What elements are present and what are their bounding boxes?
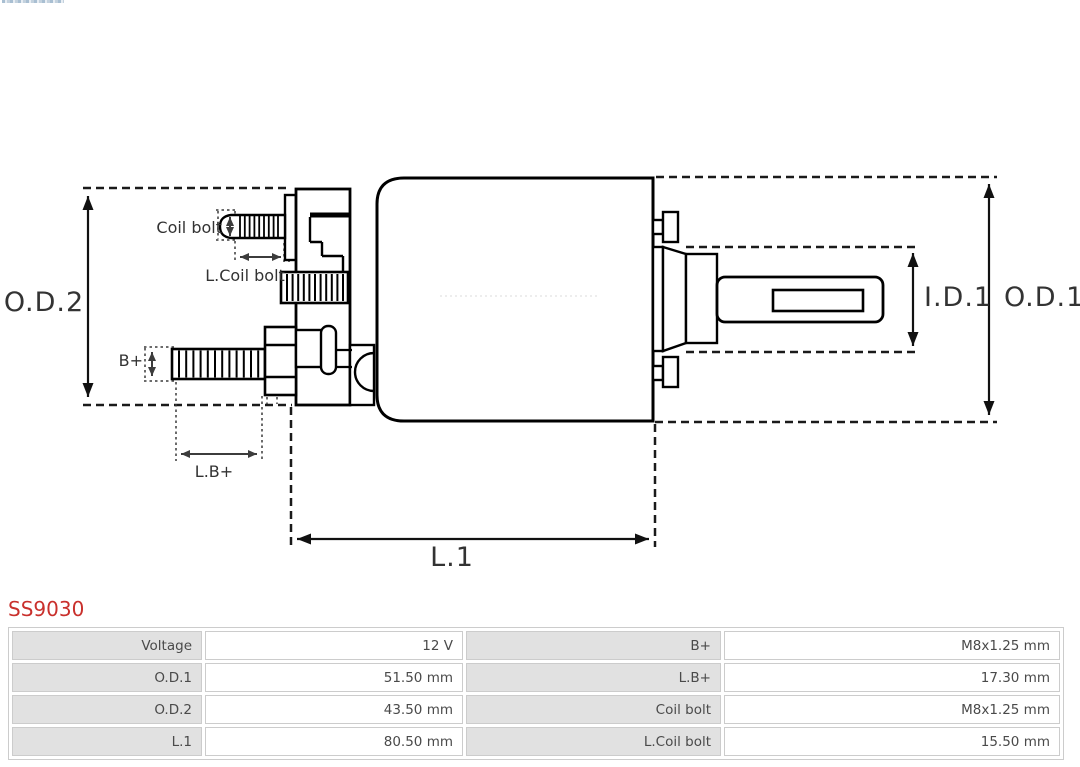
id1-label: I.D.1 [924, 282, 992, 313]
spec-value: 17.30 mm [724, 663, 1060, 692]
spec-label: Coil bolt [466, 695, 721, 724]
rear-end-assembly [653, 212, 883, 387]
coil-bolt-ear [285, 195, 296, 260]
spec-label: O.D.1 [12, 663, 202, 692]
spec-label: O.D.2 [12, 695, 202, 724]
rear-bolt-bottom-head [663, 357, 678, 387]
table-row: L.1 80.50 mm L.Coil bolt 15.50 mm [12, 727, 1060, 756]
spec-label: Voltage [12, 631, 202, 660]
rear-cone [663, 247, 686, 351]
rear-bolt-top [653, 220, 663, 234]
product-spec-page: O.D.2 O.D.1 I.D.1 L.1 Coil bolt L.Coil b… [0, 0, 1080, 767]
contact-washer [321, 326, 336, 374]
rear-bolt-top-head [663, 212, 678, 242]
spec-value: 51.50 mm [205, 663, 463, 692]
b-plus-nut [265, 327, 296, 395]
l-coil-bolt-label: L.Coil bolt [205, 266, 285, 285]
spec-value: M8x1.25 mm [724, 631, 1060, 660]
table-row: O.D.1 51.50 mm L.B+ 17.30 mm [12, 663, 1060, 692]
spec-table-wrapper: Voltage 12 V B+ M8x1.25 mm O.D.1 51.50 m… [8, 627, 1064, 760]
solenoid-body [377, 178, 653, 421]
od2-label: O.D.2 [4, 287, 84, 318]
b-plus-label: B+ [119, 351, 143, 370]
l-b-plus-label: L.B+ [195, 462, 233, 481]
table-row: Voltage 12 V B+ M8x1.25 mm [12, 631, 1060, 660]
b-plus-shank [296, 330, 323, 367]
rear-bolt-bottom [653, 366, 663, 380]
coil-bolt-label: Coil bolt [156, 218, 222, 237]
spec-value: 80.50 mm [205, 727, 463, 756]
spec-label: L.1 [12, 727, 202, 756]
table-row: O.D.2 43.50 mm Coil bolt M8x1.25 mm [12, 695, 1060, 724]
spec-label: L.B+ [466, 663, 721, 692]
spec-value: M8x1.25 mm [724, 695, 1060, 724]
solenoid-dimension-diagram: O.D.2 O.D.1 I.D.1 L.1 Coil bolt L.Coil b… [0, 0, 1080, 595]
spec-table: Voltage 12 V B+ M8x1.25 mm O.D.1 51.50 m… [9, 628, 1063, 759]
spec-value: 43.50 mm [205, 695, 463, 724]
spec-label: L.Coil bolt [466, 727, 721, 756]
spec-value: 12 V [205, 631, 463, 660]
spec-label: B+ [466, 631, 721, 660]
spec-value: 15.50 mm [724, 727, 1060, 756]
od1-label: O.D.1 [1004, 282, 1080, 313]
product-code: SS9030 [8, 597, 84, 621]
rear-collar [686, 254, 717, 343]
rear-boss [653, 247, 663, 351]
coil-thread-band [281, 272, 348, 303]
l1-label: L.1 [430, 542, 474, 573]
shaft-slot [773, 290, 863, 311]
